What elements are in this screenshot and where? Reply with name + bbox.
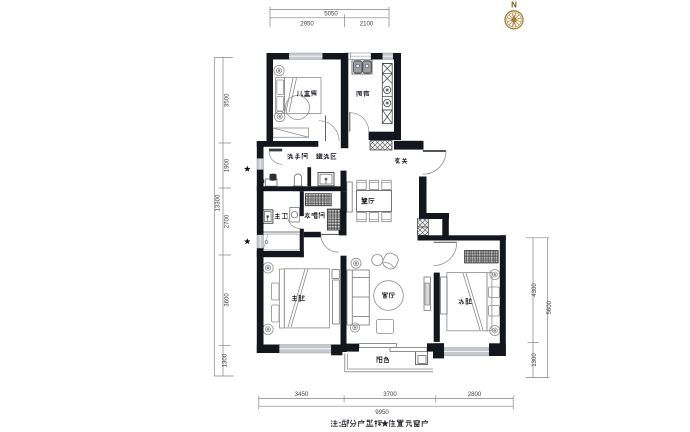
svg-text:2700: 2700: [224, 214, 231, 228]
svg-text:5600: 5600: [546, 300, 553, 314]
svg-text:3700: 3700: [383, 391, 397, 398]
svg-text:2800: 2800: [468, 391, 482, 398]
svg-text:3500: 3500: [224, 93, 231, 107]
svg-text:3450: 3450: [295, 391, 309, 398]
svg-text:5050: 5050: [324, 10, 338, 17]
svg-text:4300: 4300: [531, 283, 538, 297]
svg-text:1300: 1300: [222, 353, 229, 367]
svg-text:2100: 2100: [360, 21, 374, 28]
svg-text:9950: 9950: [375, 409, 389, 416]
svg-text:1300: 1300: [531, 353, 538, 367]
svg-text:13300: 13300: [214, 194, 221, 212]
svg-text:3600: 3600: [224, 293, 231, 307]
svg-text:N: N: [511, 1, 517, 10]
svg-text:1900: 1900: [224, 158, 231, 172]
svg-text:2950: 2950: [300, 21, 314, 28]
